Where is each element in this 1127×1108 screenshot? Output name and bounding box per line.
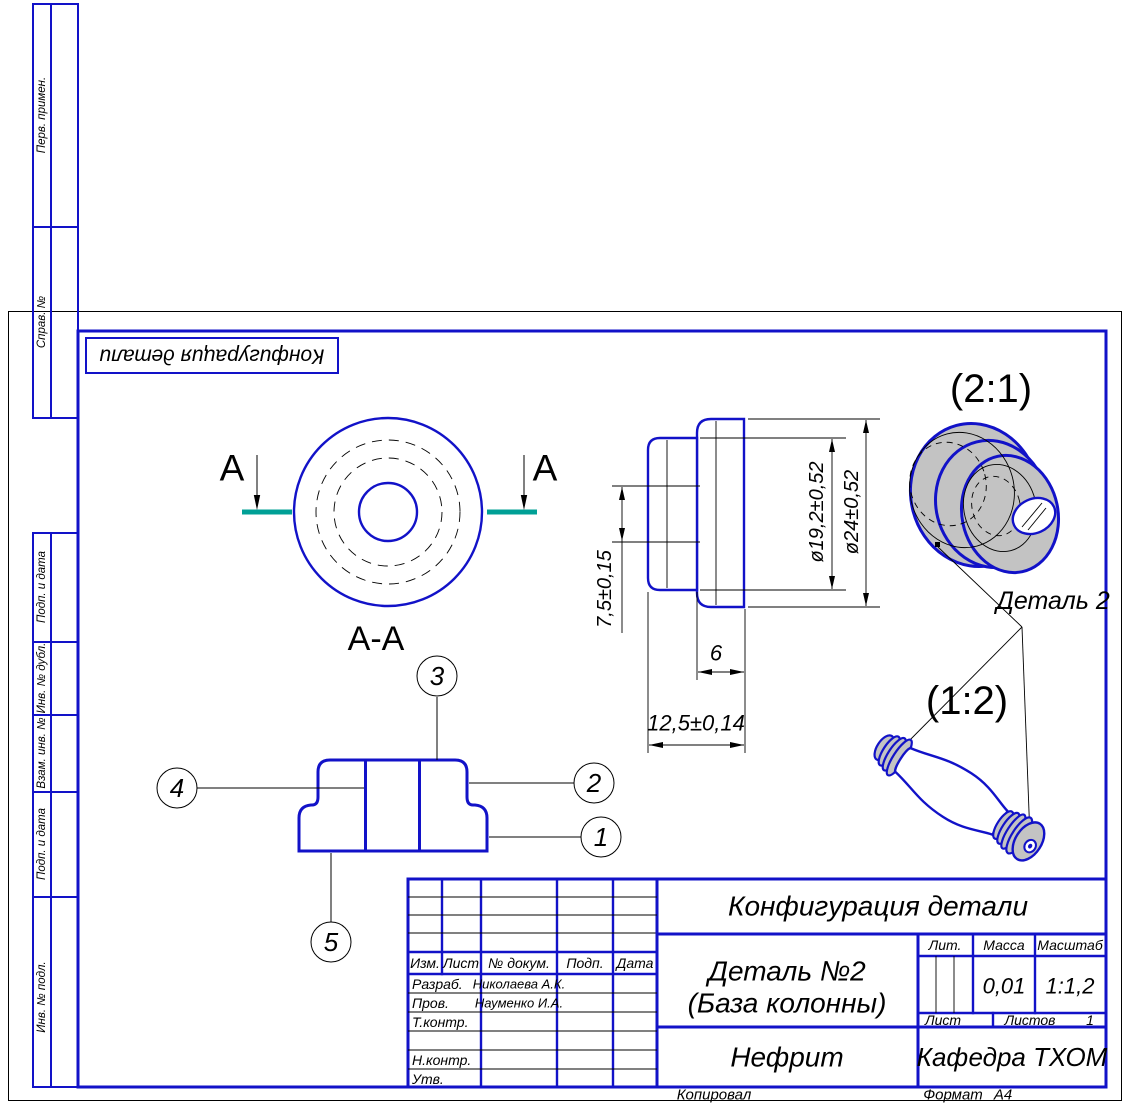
doc-title: Конфигурация детали bbox=[728, 891, 1029, 922]
lit-label: Лит. bbox=[928, 937, 962, 953]
role-approver: Утв. bbox=[411, 1071, 444, 1087]
side-view: 7,5±0,15 ø19,2±0,52 ø24±0,52 6 bbox=[594, 419, 880, 753]
role-developer: Разраб. bbox=[412, 976, 463, 992]
sheets-value: 1 bbox=[1086, 1012, 1094, 1028]
role-ncontrol: Н.контр. bbox=[412, 1052, 471, 1068]
drawing-canvas: Перв. примен. Справ. № Подп. и дата Инв.… bbox=[0, 0, 1127, 1108]
drawing-sheet: Перв. примен. Справ. № Подп. и дата Инв.… bbox=[0, 0, 1127, 1108]
balloon-2-number: 2 bbox=[586, 768, 602, 798]
sheets-label: Листов bbox=[1004, 1012, 1056, 1028]
margin-label-podp-data-1: Подп. и дата bbox=[36, 551, 48, 623]
col-date: Дата bbox=[615, 955, 654, 971]
rotated-designation-text: Конфигурация детали bbox=[99, 345, 324, 368]
department-value: Кафедра ТХОМ bbox=[917, 1042, 1108, 1072]
col-doc: № докум. bbox=[488, 955, 550, 971]
margin-label-podp-data-2: Подп. и дата bbox=[36, 808, 48, 880]
rotated-designation-stamp: Конфигурация детали bbox=[86, 338, 338, 373]
scale-label: Масштаб bbox=[1037, 937, 1104, 953]
format-label: Формат bbox=[923, 1087, 983, 1104]
section-arrow-left bbox=[254, 495, 260, 510]
scale-value: 1:1,2 bbox=[1046, 974, 1095, 999]
name-checker: Науменко И.А. bbox=[475, 996, 563, 1011]
role-checker: Пров. bbox=[412, 995, 449, 1011]
margin-label-sprav-n: Справ. № bbox=[36, 295, 48, 348]
part-name-line2: (База колонны) bbox=[688, 988, 887, 1019]
plan-view: А А А-А bbox=[220, 418, 558, 658]
mass-label: Масса bbox=[983, 937, 1025, 953]
section-view-title: А-А bbox=[348, 620, 405, 658]
title-block: Изм. Лист № докум. Подп. Дата Разраб. Ни… bbox=[408, 879, 1108, 1087]
dimension-12-5-text: 12,5±0,14 bbox=[647, 711, 745, 736]
bore-hole bbox=[367, 762, 418, 849]
margin-label-inv-podl: Инв. № подл. bbox=[36, 961, 48, 1032]
dimension-7-5-text: 7,5±0,15 bbox=[594, 549, 616, 628]
leader-dot-iso bbox=[935, 542, 940, 547]
detail-callout-text: Деталь 2 bbox=[993, 587, 1110, 615]
material-value: Нефрит bbox=[730, 1042, 843, 1073]
format-value: А4 bbox=[993, 1087, 1012, 1104]
section-letter-right: А bbox=[533, 448, 558, 489]
balloon-3-number: 3 bbox=[430, 661, 445, 691]
dimension-d19-2-text: ø19,2±0,52 bbox=[806, 461, 828, 562]
section-view: 3 4 2 1 5 bbox=[157, 656, 621, 962]
sheet-label: Лист bbox=[924, 1012, 961, 1028]
part-name-line1: Деталь №2 bbox=[705, 956, 866, 987]
margin-columns: Перв. примен. Справ. № Подп. и дата Инв.… bbox=[33, 4, 78, 1087]
balloon-5-number: 5 bbox=[324, 927, 339, 957]
margin-label-perv-primen: Перв. примен. bbox=[36, 77, 48, 153]
dimension-d24-text: ø24±0,52 bbox=[841, 470, 863, 554]
name-developer: Николаева А.К. bbox=[473, 977, 565, 992]
section-arrow-right bbox=[521, 495, 527, 510]
iso-scale-label: (2:1) bbox=[950, 367, 1032, 411]
balloon-4-number: 4 bbox=[170, 773, 184, 803]
isometric-view: (2:1) bbox=[895, 367, 1070, 582]
margin-label-inv-dubl: Инв. № дубл. bbox=[36, 643, 48, 714]
column-scale-label: (1:2) bbox=[926, 679, 1008, 723]
dimension-6-text: 6 bbox=[710, 641, 723, 666]
role-tcontrol: Т.контр. bbox=[412, 1014, 468, 1030]
dimension-7-5: 7,5±0,15 bbox=[594, 487, 625, 633]
balloon-1-number: 1 bbox=[594, 822, 608, 852]
section-letter-left: А bbox=[220, 448, 245, 489]
margin-label-vzam-inv: Взам. инв. № bbox=[36, 717, 48, 789]
col-sign: Подп. bbox=[566, 955, 603, 971]
col-izm: Изм. bbox=[410, 955, 440, 971]
copied-label: Копировал bbox=[677, 1087, 752, 1104]
col-list: Лист bbox=[442, 955, 479, 971]
mass-value: 0,01 bbox=[983, 974, 1026, 999]
